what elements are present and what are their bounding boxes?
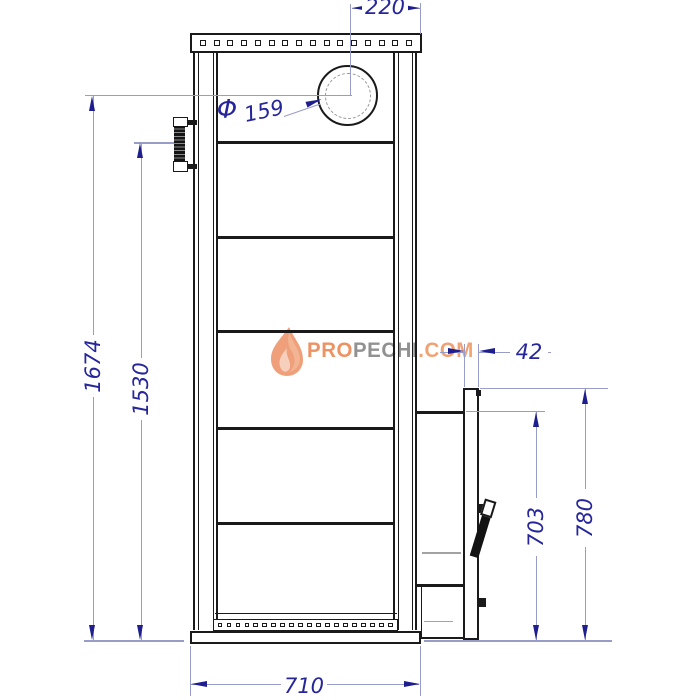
shelf-line — [217, 236, 394, 239]
bolt-hole — [324, 40, 330, 46]
arrowhead — [137, 143, 143, 158]
side-flange-bar — [174, 126, 185, 162]
bolt-hole — [351, 40, 357, 46]
bolt-hole — [218, 623, 223, 628]
bolt-hole — [227, 40, 233, 46]
base-flange — [190, 631, 421, 644]
dim-label-1674: 1674 — [82, 335, 104, 397]
extension-line — [420, 3, 421, 34]
arrowhead — [582, 389, 588, 404]
extension-line — [480, 388, 608, 389]
arrowhead — [137, 625, 143, 640]
arrowhead — [582, 625, 588, 640]
arrowhead — [404, 681, 420, 687]
arrowhead — [191, 681, 207, 687]
dim-label-780: 780 — [574, 489, 596, 547]
base-hole-strip — [214, 620, 398, 630]
shelf-line — [217, 141, 394, 144]
body-wall-line — [415, 53, 417, 630]
watermark-com: .COM — [418, 338, 474, 362]
dim-label-220: 220 — [362, 0, 408, 18]
bolt-hole — [388, 623, 393, 628]
arrowhead — [533, 412, 539, 427]
bolt-hole — [253, 623, 258, 628]
bolt-hole — [262, 623, 267, 628]
top-flange-holes — [192, 35, 420, 51]
bolt-hole — [296, 40, 302, 46]
leader-line — [284, 104, 320, 117]
shelf-line — [217, 427, 394, 430]
bolt-hole — [236, 623, 241, 628]
arrowhead — [89, 625, 95, 640]
extension-line — [420, 646, 421, 696]
watermark: PROPECHI.COM — [268, 326, 306, 378]
bolt-hole — [289, 623, 294, 628]
bolt-hole — [307, 623, 312, 628]
arrowhead — [448, 348, 464, 354]
base-hole-flange — [213, 619, 399, 631]
tunnel-lower-grate-line — [424, 621, 453, 623]
bolt-hole — [392, 40, 398, 46]
door-latch — [478, 598, 487, 607]
extension-line — [464, 344, 465, 387]
bolt-hole — [269, 40, 275, 46]
tunnel-top-line — [417, 411, 464, 414]
bolt-hole — [343, 623, 348, 628]
baseline-extension — [84, 640, 184, 641]
door-hinge — [476, 390, 481, 396]
top-flange — [190, 33, 422, 53]
body-wall-line — [213, 53, 214, 630]
bolt-hole — [271, 623, 276, 628]
dim-label-1530: 1530 — [130, 358, 152, 420]
tunnel-mid-line — [417, 584, 464, 587]
bolt-hole — [310, 40, 316, 46]
shelf-line — [217, 522, 394, 525]
bolt-hole — [325, 623, 330, 628]
bolt-hole — [245, 623, 250, 628]
dim-label-flue: 159 — [241, 96, 287, 126]
extension-line — [190, 646, 191, 696]
bolt-hole — [334, 623, 339, 628]
arrowhead — [89, 96, 95, 111]
shelf-line — [217, 330, 394, 333]
body-wall-line — [398, 53, 399, 630]
bolt-hole — [241, 40, 247, 46]
side-flange-bottom-connector — [187, 164, 197, 170]
bolt-hole — [379, 623, 384, 628]
tunnel-grate-line — [422, 552, 461, 554]
bolt-hole — [200, 40, 206, 46]
arrowhead — [533, 625, 539, 640]
arrowhead — [479, 348, 495, 354]
bolt-hole — [352, 623, 357, 628]
bolt-hole — [361, 623, 366, 628]
body-wall-line — [393, 53, 395, 630]
bolt-hole — [282, 40, 288, 46]
bolt-hole — [365, 40, 371, 46]
dim-label-710: 710 — [281, 675, 327, 697]
baseline-extension — [424, 640, 612, 641]
dim-label-flue-prefix: Φ — [214, 99, 240, 121]
bolt-hole — [316, 623, 321, 628]
side-flange-top-connector — [187, 120, 197, 126]
bolt-hole — [337, 40, 343, 46]
bolt-hole — [406, 40, 412, 46]
bolt-hole — [255, 40, 261, 46]
cavity-bottom-line — [215, 613, 397, 615]
firebox-door-panel — [463, 388, 479, 640]
tunnel-side-line — [421, 584, 423, 638]
bolt-hole — [227, 623, 232, 628]
flue-centerline — [350, 4, 351, 96]
flame-icon — [268, 326, 306, 378]
technical-drawing-canvas: PROPECHI.COM — [0, 0, 700, 700]
body-wall-line — [412, 53, 413, 630]
bolt-hole — [214, 40, 220, 46]
body-wall-line — [216, 53, 218, 630]
side-flange-bottom-tab — [173, 161, 188, 172]
bolt-hole — [280, 623, 285, 628]
bolt-hole — [370, 623, 375, 628]
body-wall-line — [198, 53, 199, 630]
watermark-pro: PRO — [307, 338, 353, 362]
bolt-hole — [379, 40, 385, 46]
watermark-pechi: PECHI — [353, 338, 418, 362]
dim-label-703: 703 — [525, 498, 547, 556]
body-wall-line — [193, 53, 195, 630]
dim-label-42: 42 — [510, 341, 548, 363]
bolt-hole — [298, 623, 303, 628]
